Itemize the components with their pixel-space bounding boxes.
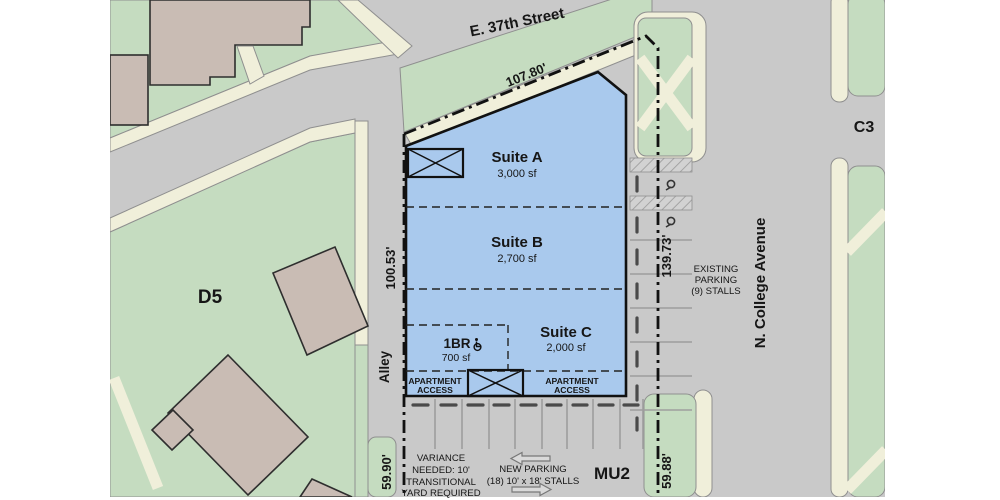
college-west-walk xyxy=(694,390,712,497)
crosswalk-hatch-1 xyxy=(630,158,692,172)
northeast-corner-island xyxy=(634,12,706,162)
context-building-west xyxy=(110,55,148,125)
college-east-walk-north xyxy=(831,0,848,102)
right-margin xyxy=(885,0,1000,500)
apartment-access-right-2: ACCESS xyxy=(554,385,590,395)
college-east-walk-south xyxy=(831,158,848,497)
variance-note-1: VARIANCE xyxy=(417,453,465,464)
college-east-side xyxy=(831,0,886,497)
variance-note-2: NEEDED: 10' xyxy=(412,465,470,476)
suite-b-area: 2,700 sf xyxy=(497,253,537,265)
suite-a-area: 3,000 sf xyxy=(497,168,537,180)
apartment-name: 1BR xyxy=(443,336,470,351)
suite-a-name: Suite A xyxy=(491,149,542,166)
street-label-college: N. College Avenue xyxy=(752,218,769,349)
existing-parking-label-1: EXISTING xyxy=(694,264,739,275)
dim-west-label: 100.53' xyxy=(383,247,398,290)
zone-label-d5: D5 xyxy=(198,287,223,308)
southeast-corner-island xyxy=(644,390,712,497)
crosswalk-hatch-2 xyxy=(630,196,692,210)
suite-b-name: Suite B xyxy=(491,234,543,251)
dim-east-label: 139.73' xyxy=(659,235,674,278)
site-plan-drawing: E. 37th Street N. College Avenue Alley D… xyxy=(0,0,1000,500)
apartment-access-left-2: ACCESS xyxy=(417,385,453,395)
variance-note-3: TRANSITIONAL xyxy=(406,477,476,488)
suite-c-name: Suite C xyxy=(540,324,592,341)
dim-se-label: 59.88' xyxy=(659,453,674,489)
dim-sw-label: 59.90' xyxy=(379,454,394,490)
variance-note-4: YARD REQUIRED xyxy=(401,488,480,499)
left-margin xyxy=(0,0,110,500)
street-label-alley: Alley xyxy=(377,350,392,383)
new-parking-label-2: (18) 10' x 18' STALLS xyxy=(487,476,580,487)
existing-parking-label-2: PARKING xyxy=(695,275,737,286)
new-parking-label-1: NEW PARKING xyxy=(499,464,567,475)
apartment-area: 700 sf xyxy=(442,352,471,364)
suite-c-area: 2,000 sf xyxy=(546,342,586,354)
existing-parking-label-3: (9) STALLS xyxy=(691,286,740,297)
site-plan-canvas: E. 37th Street N. College Avenue Alley D… xyxy=(0,0,1000,500)
zone-label-mu2: MU2 xyxy=(594,464,630,483)
zone-label-c3: C3 xyxy=(854,119,875,136)
